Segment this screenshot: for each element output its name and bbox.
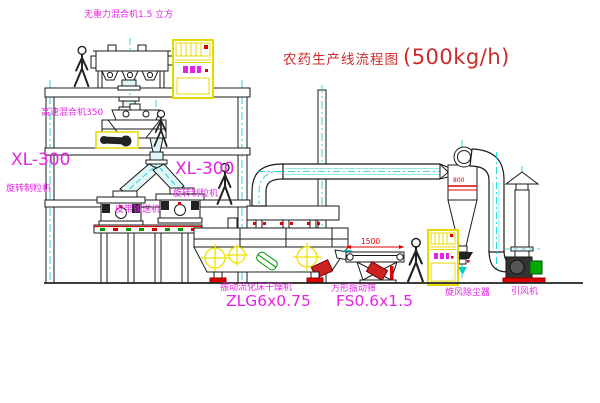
label-screen-model: FS0.6x1.5 xyxy=(336,294,413,310)
flow-diagram-page: 农药生产线流程图 (500kg/h) 无重力混合机1.5 立方 高速混合机350… xyxy=(0,0,600,403)
exhaust-hood xyxy=(247,206,339,220)
induced-draft-fan xyxy=(503,257,545,283)
label-xl300-right: XL-300 xyxy=(175,161,234,178)
label-xl300-left: XL-300 xyxy=(11,152,70,169)
fan-motor xyxy=(530,261,542,274)
person-top-floor xyxy=(75,46,89,86)
label-xl300-left-sub: 旋转制粒机 xyxy=(6,185,51,194)
dimension-screen-width: 1500 xyxy=(361,238,380,246)
label-high-speed-mixer: 高速混合机350 xyxy=(41,109,103,118)
indicator-red-dot xyxy=(204,45,208,49)
fluid-bed-dryer xyxy=(194,206,352,283)
label-gravity-mixer: 无重力混合机1.5 立方 xyxy=(84,11,173,20)
diagram-title: 农药生产线流程图 (500kg/h) xyxy=(283,45,510,69)
exhaust-duct xyxy=(252,164,470,206)
title-capacity: (500kg/h) xyxy=(403,45,510,69)
belt-conveyor xyxy=(94,225,202,283)
floor-slab-mid xyxy=(45,148,250,155)
dimension-cyclone: 800 xyxy=(453,178,464,184)
square-vibrating-screen xyxy=(346,245,404,283)
control-cabinet-top xyxy=(173,40,213,98)
label-fbd-model: ZLG6x0.75 xyxy=(226,294,311,310)
floor-slab-top xyxy=(45,88,250,97)
label-cyclone: 旋风除尘器 xyxy=(445,289,490,298)
label-belt-conveyor: 皮带输送机 xyxy=(115,206,160,215)
control-cabinet-right xyxy=(428,230,458,285)
label-xl300-right-sub: 旋转制粒机 xyxy=(173,190,218,199)
label-fan: 引风机 xyxy=(511,288,538,297)
title-text: 农药生产线流程图 xyxy=(283,48,399,68)
person-ground xyxy=(408,239,423,282)
